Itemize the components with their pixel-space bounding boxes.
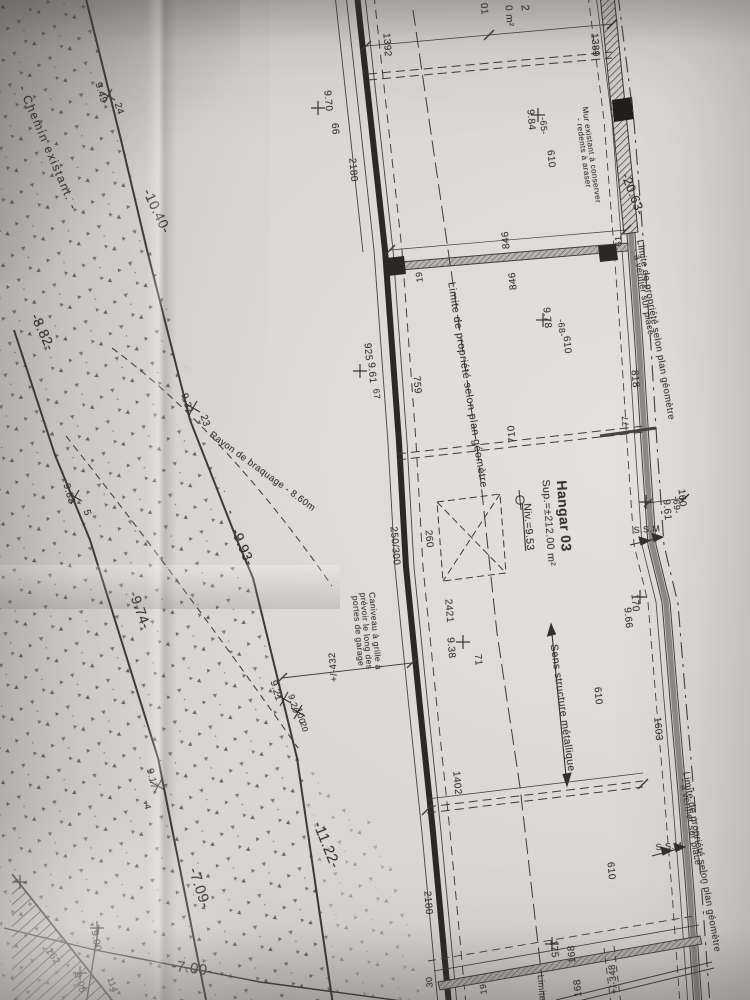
rayon-braquage-label: Rayon de braquage - 8.60m xyxy=(207,430,317,513)
dim-1603: 1603 xyxy=(651,717,664,742)
chemin-existant-label: - Chemin existant. - xyxy=(16,84,80,212)
dim-710: 710 xyxy=(507,425,519,444)
dim-30: 30 xyxy=(425,976,435,988)
dim-759: 759 xyxy=(410,376,422,395)
point-66: 66 xyxy=(328,123,340,136)
ssm-top-label: S.S.M xyxy=(633,524,660,535)
dim-2421: 2421 xyxy=(442,599,455,624)
dim-846-b: 846 xyxy=(508,272,520,291)
point-65: -65- xyxy=(538,117,549,135)
dim-2180-bottom: 2180 xyxy=(421,891,434,916)
spot-9-66: 9.66 xyxy=(621,607,633,629)
level-11-22: -11.22- xyxy=(309,819,342,871)
level-7-00: -7.00- xyxy=(170,958,213,979)
dim-77: 77 xyxy=(621,415,631,427)
dim-610-a: 610 xyxy=(544,150,556,169)
dim-20-63: -20.63- xyxy=(619,171,648,217)
dim-432: +/-432 xyxy=(328,652,341,682)
dim-250-300: 250/300 xyxy=(387,526,401,566)
dim-61: 61 xyxy=(614,235,624,247)
dim-846-a: 846 xyxy=(501,231,513,250)
spot-9-33: 9.33 xyxy=(60,482,76,505)
limite-propriete-interior: Limite de propriété selon plan géomètre xyxy=(445,281,488,489)
spot-9-70: 9.70 xyxy=(321,90,333,112)
spot-9-49: 9.49 xyxy=(92,81,108,104)
spot-9-17: 9.17 xyxy=(143,768,158,791)
dim-818: 818 xyxy=(628,370,640,389)
point-67: 67 xyxy=(371,388,381,400)
spot-9-61-west: 9.61 xyxy=(365,362,377,384)
point-114: 114 xyxy=(105,976,119,994)
dim-2180-top: 2180 xyxy=(346,158,359,183)
level-10-40: -10.40- xyxy=(140,187,173,236)
point-23: 23 xyxy=(197,414,211,429)
hangar-name: Hangar 03 xyxy=(554,480,574,552)
dim-348: +/-348 xyxy=(608,964,621,994)
spot-9-78: 9.78 xyxy=(540,307,552,329)
dim-925: 925 xyxy=(361,343,373,362)
spot-9-38: 9.38 xyxy=(444,637,456,659)
hangar-level: Niv.=9.53 xyxy=(521,503,535,551)
level-7-09: -7.09- xyxy=(185,866,213,910)
sens-structure-label: Sens structure métallique xyxy=(548,644,577,773)
point-162: 162 xyxy=(43,947,62,968)
spot-9-84: 9.84 xyxy=(524,109,536,131)
dim-1389: 1389 xyxy=(588,33,600,58)
point-24: 24 xyxy=(111,102,125,116)
limite-bottom-fragment: Limite xyxy=(535,974,547,1000)
dim-168-b: 168 xyxy=(573,979,585,998)
ssm-bottom-label: S.S.M xyxy=(655,841,682,852)
site-plan-photo: - Chemin existant. --10.40--8.82--9.93--… xyxy=(0,0,750,1000)
dim-19-a: 19 xyxy=(415,271,425,283)
dim-175: 175 xyxy=(547,940,559,959)
dim-260: 260 xyxy=(422,530,434,549)
spot-9-00: 9.00 xyxy=(88,930,102,953)
label-layer: - Chemin existant. --10.40--8.82--9.93--… xyxy=(0,0,750,1000)
spot-9-31: 9.31 xyxy=(178,392,194,415)
dim-1402: 1402 xyxy=(450,771,463,796)
top-edge-fragment-01: 01 xyxy=(477,3,489,16)
point-69: -69- xyxy=(671,496,682,514)
level-9-74: -9.74- xyxy=(126,589,153,631)
point-20: 20 xyxy=(298,721,309,733)
dim-168-a: 168 xyxy=(567,945,579,964)
dim-1392: 1392 xyxy=(380,33,392,58)
level-9-93: -9.93- xyxy=(229,526,258,568)
top-edge-fragment-2: 2 xyxy=(518,4,530,12)
point-68: -68- xyxy=(556,319,567,337)
dim-610-b: 610 xyxy=(560,336,572,355)
point-5: 5 xyxy=(80,509,92,518)
point-4: 4 xyxy=(142,803,152,811)
top-edge-fragment-m2: 0 m² xyxy=(502,5,514,27)
point-71: 71 xyxy=(471,654,483,667)
dim-19-b: 19 xyxy=(479,983,489,995)
spot-9-21: 9.21 xyxy=(267,679,283,702)
dim-610-d: 610 xyxy=(604,862,616,881)
dim-610-c: 610 xyxy=(591,687,603,706)
spot-9-05: 9.05 xyxy=(71,971,87,994)
level-8-82: -8.82- xyxy=(28,311,58,353)
